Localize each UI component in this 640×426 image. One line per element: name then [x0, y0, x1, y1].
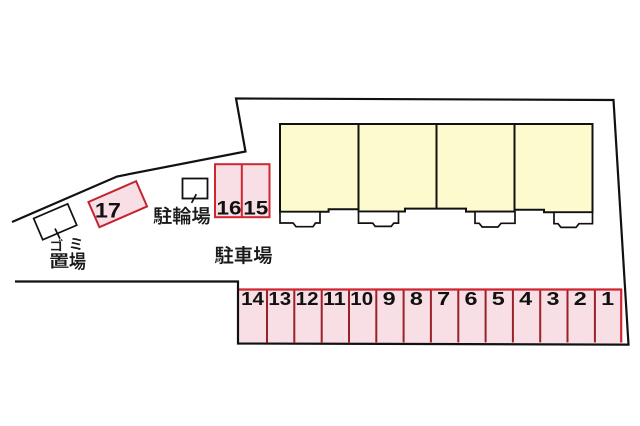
svg-text:5: 5: [492, 288, 505, 309]
svg-text:17: 17: [95, 200, 121, 223]
svg-text:4: 4: [519, 288, 533, 309]
svg-text:6: 6: [465, 288, 478, 309]
svg-text:15: 15: [243, 199, 269, 220]
svg-text:10: 10: [350, 288, 373, 309]
svg-text:9: 9: [383, 288, 396, 309]
svg-text:3: 3: [547, 288, 560, 309]
svg-text:12: 12: [296, 288, 319, 309]
svg-text:2: 2: [574, 288, 587, 309]
svg-text:14: 14: [241, 288, 265, 309]
svg-text:13: 13: [268, 288, 291, 309]
svg-text:7: 7: [437, 288, 450, 309]
svg-text:1: 1: [601, 288, 614, 309]
svg-text:11: 11: [323, 288, 346, 309]
svg-text:8: 8: [410, 288, 423, 309]
svg-text:16: 16: [217, 199, 242, 220]
